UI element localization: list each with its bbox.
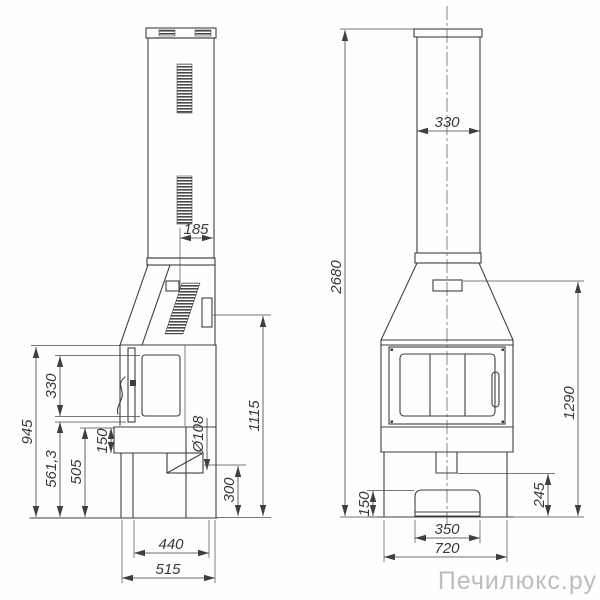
dim-300-label: 300 — [221, 477, 238, 503]
dim-2680-label: 2680 — [328, 260, 345, 295]
front-dimensions: 330 2680 1290 245 — [328, 29, 584, 562]
dim-150-side: 150 — [94, 428, 111, 454]
side-damper-handle — [166, 281, 179, 291]
dim-1290-label: 1290 — [561, 386, 578, 420]
front-chimney-cap — [414, 29, 482, 37]
dim-1115-label: 1115 — [246, 400, 263, 432]
dim-720-label: 720 — [434, 540, 460, 557]
side-dimensions: 185 945 330 561,3 — [19, 221, 271, 583]
dim-561-3-label: 561,3 — [43, 450, 60, 488]
dim-440-label: 440 — [158, 536, 184, 553]
dim-350-label: 350 — [434, 521, 460, 538]
front-door-glass — [400, 354, 495, 416]
side-hood — [120, 265, 215, 345]
dim-108-label: Ø108 — [190, 415, 207, 453]
dim-2680: 2680 — [328, 29, 414, 517]
dim-440: 440 — [134, 520, 209, 558]
side-door-glass — [142, 355, 180, 416]
side-cap-vent-right — [195, 30, 211, 36]
dim-330-front-label: 330 — [434, 114, 460, 131]
side-door-handle — [117, 377, 125, 414]
side-column-grille-upper — [177, 64, 192, 113]
side-chimney-collar — [147, 258, 215, 265]
dim-185-label: 185 — [183, 221, 209, 238]
dim-330-side-label: 330 — [43, 373, 60, 399]
dim-330-front: 330 — [417, 114, 480, 131]
dim-150-front: 150 — [356, 491, 414, 518]
front-view: 330 2680 1290 245 — [328, 6, 584, 562]
side-flue-outlet-flange — [202, 298, 212, 327]
side-cap-vent-left — [159, 30, 175, 36]
dim-150-side-label: 150 — [94, 428, 111, 454]
side-column-grille-lower — [177, 176, 192, 224]
front-center-duct — [436, 452, 457, 473]
front-base — [378, 452, 513, 517]
dim-330-side: 330 — [43, 356, 140, 417]
watermark-text: Печилюкс.ру — [438, 567, 597, 595]
dim-108: Ø108 — [190, 415, 207, 470]
front-damper-handle — [433, 280, 462, 291]
drawing-svg: 185 945 330 561,3 — [0, 0, 600, 600]
side-view: 185 945 330 561,3 — [19, 28, 271, 583]
side-door-latch — [130, 380, 136, 386]
dim-515-label: 515 — [155, 561, 181, 578]
dim-1290: 1290 — [463, 281, 584, 517]
dim-150-front-label: 150 — [356, 491, 373, 517]
dim-505-label: 505 — [68, 459, 85, 485]
technical-drawing-fireplace: 185 945 330 561,3 — [0, 0, 600, 600]
dim-945-label: 945 — [19, 419, 36, 445]
dim-185: 185 — [180, 221, 213, 290]
dim-245-label: 245 — [531, 482, 548, 509]
dim-300: 300 — [204, 465, 271, 518]
front-chimney-collar — [415, 253, 481, 263]
